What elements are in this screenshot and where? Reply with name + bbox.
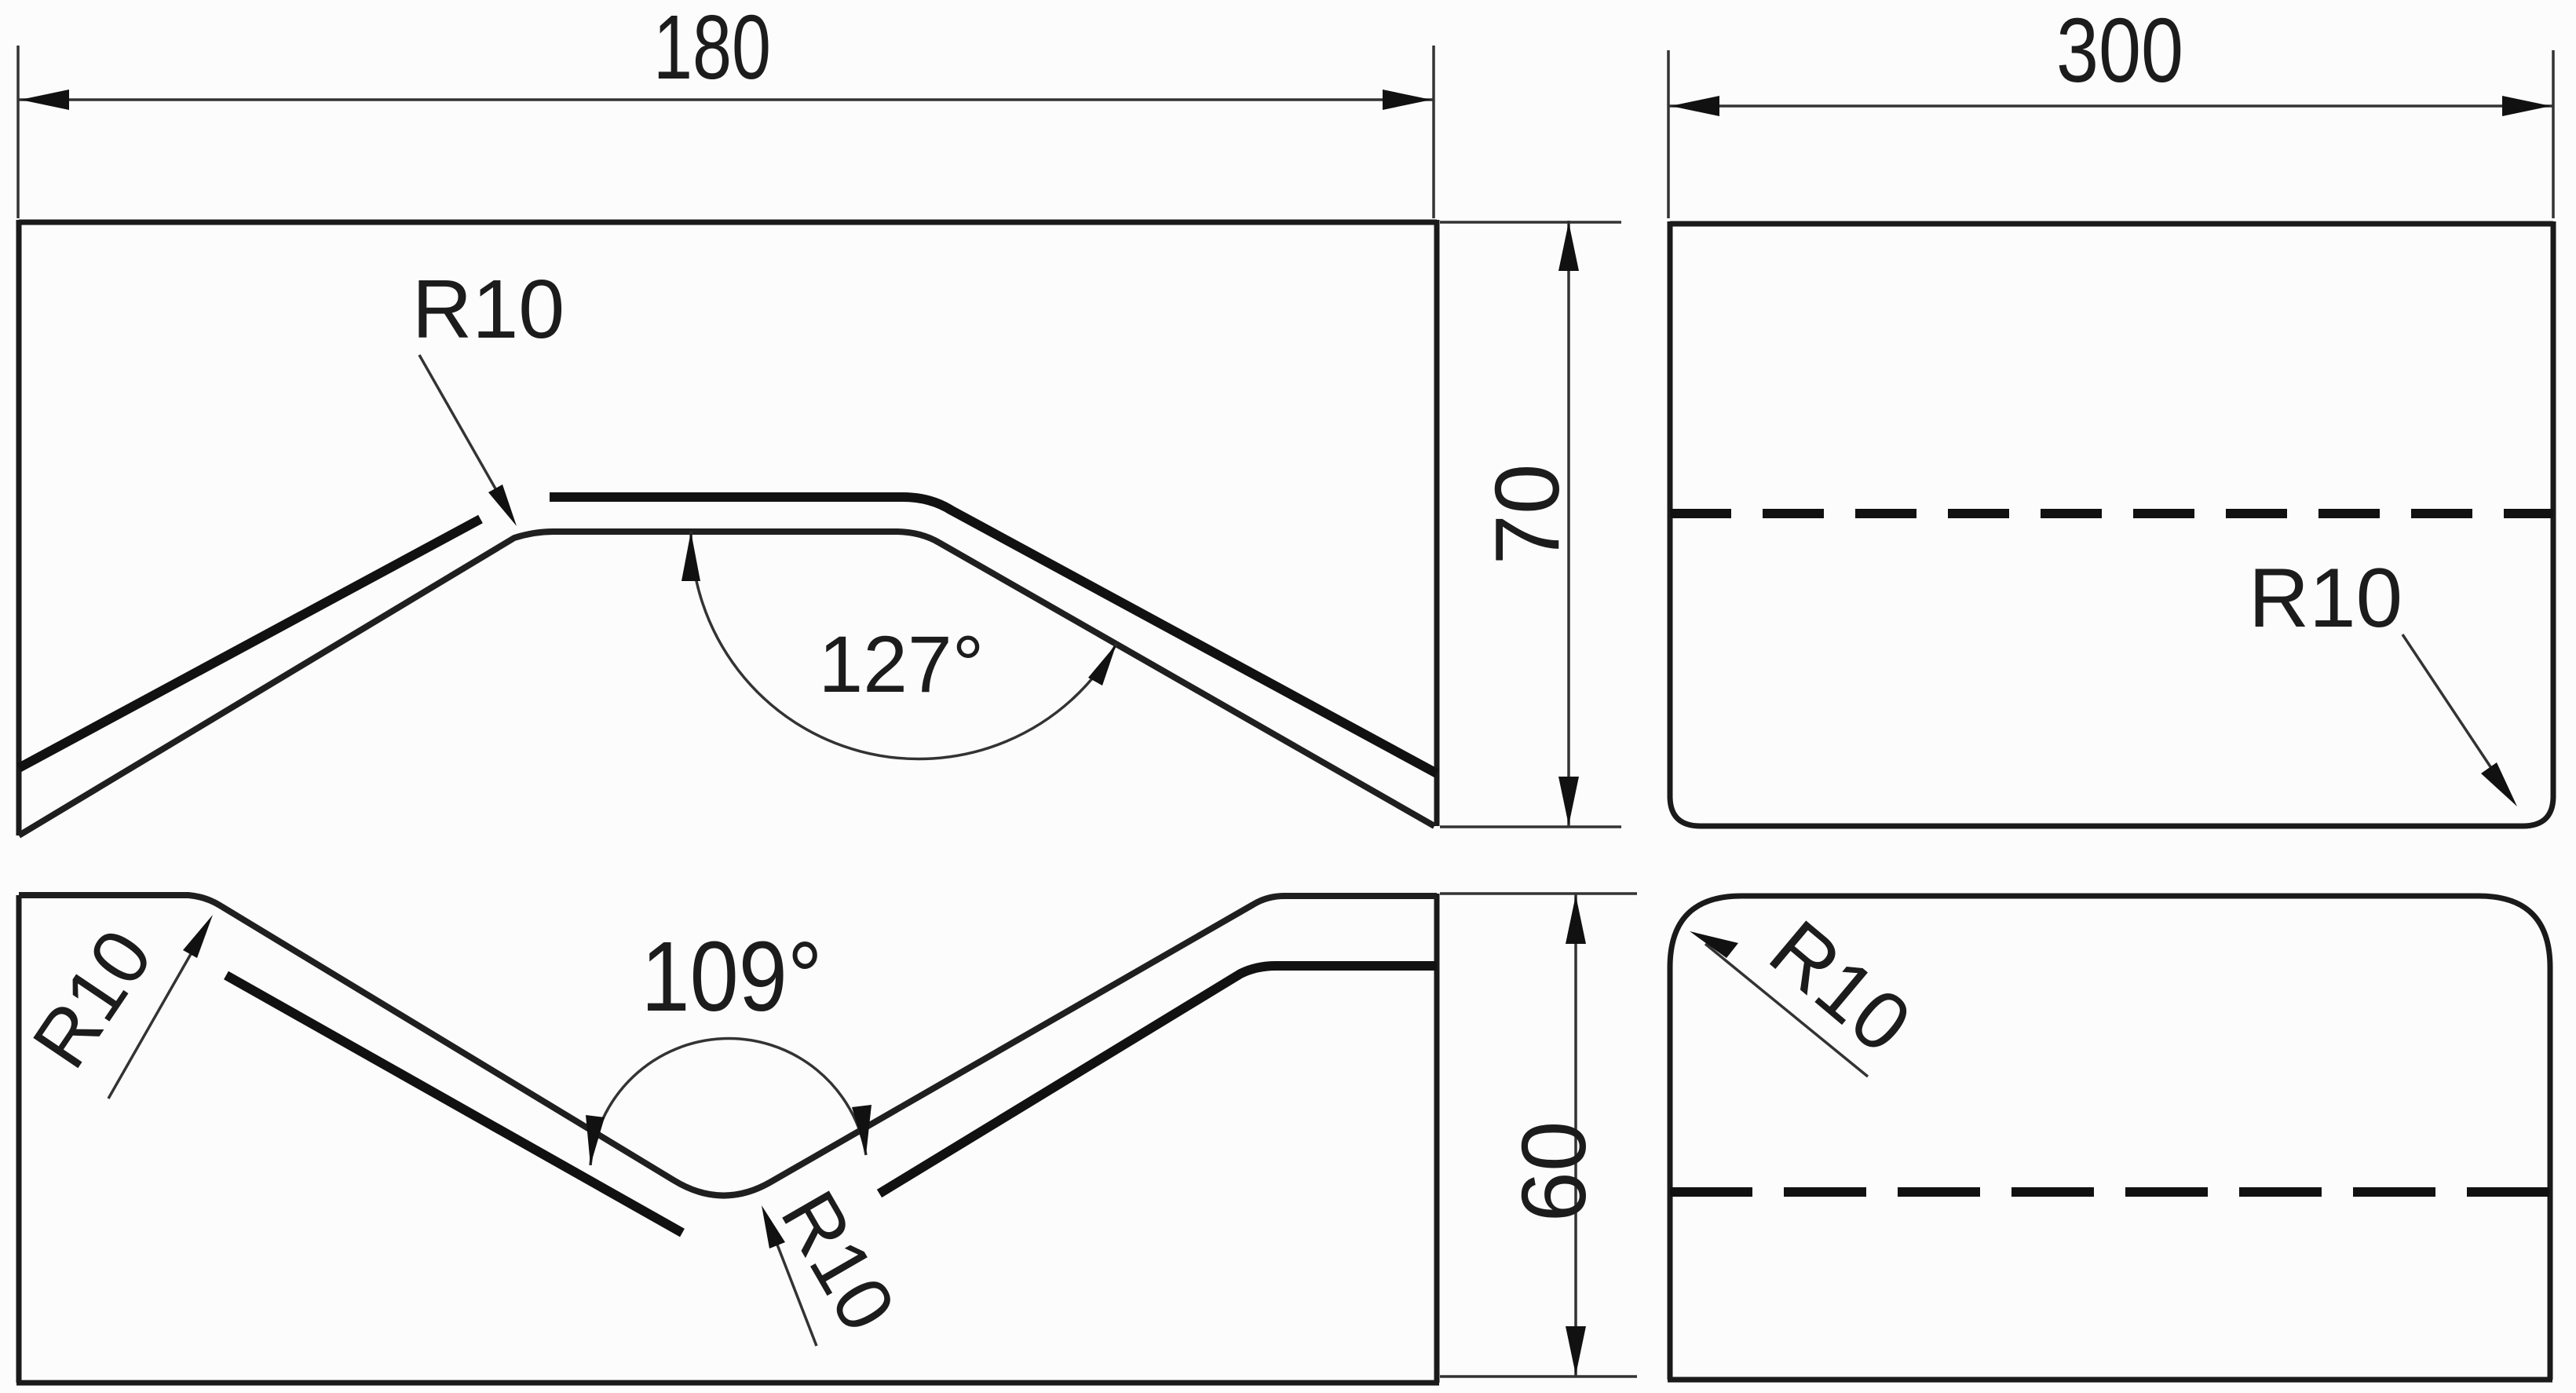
svg-text:R10: R10 (412, 263, 565, 356)
svg-text:R10: R10 (2249, 550, 2402, 645)
svg-text:300: 300 (2056, 0, 2183, 101)
svg-text:127°: 127° (819, 620, 985, 709)
svg-text:60: 60 (1503, 1121, 1605, 1222)
svg-text:180: 180 (653, 0, 771, 98)
svg-text:109°: 109° (641, 921, 823, 1032)
svg-text:70: 70 (1476, 463, 1578, 565)
